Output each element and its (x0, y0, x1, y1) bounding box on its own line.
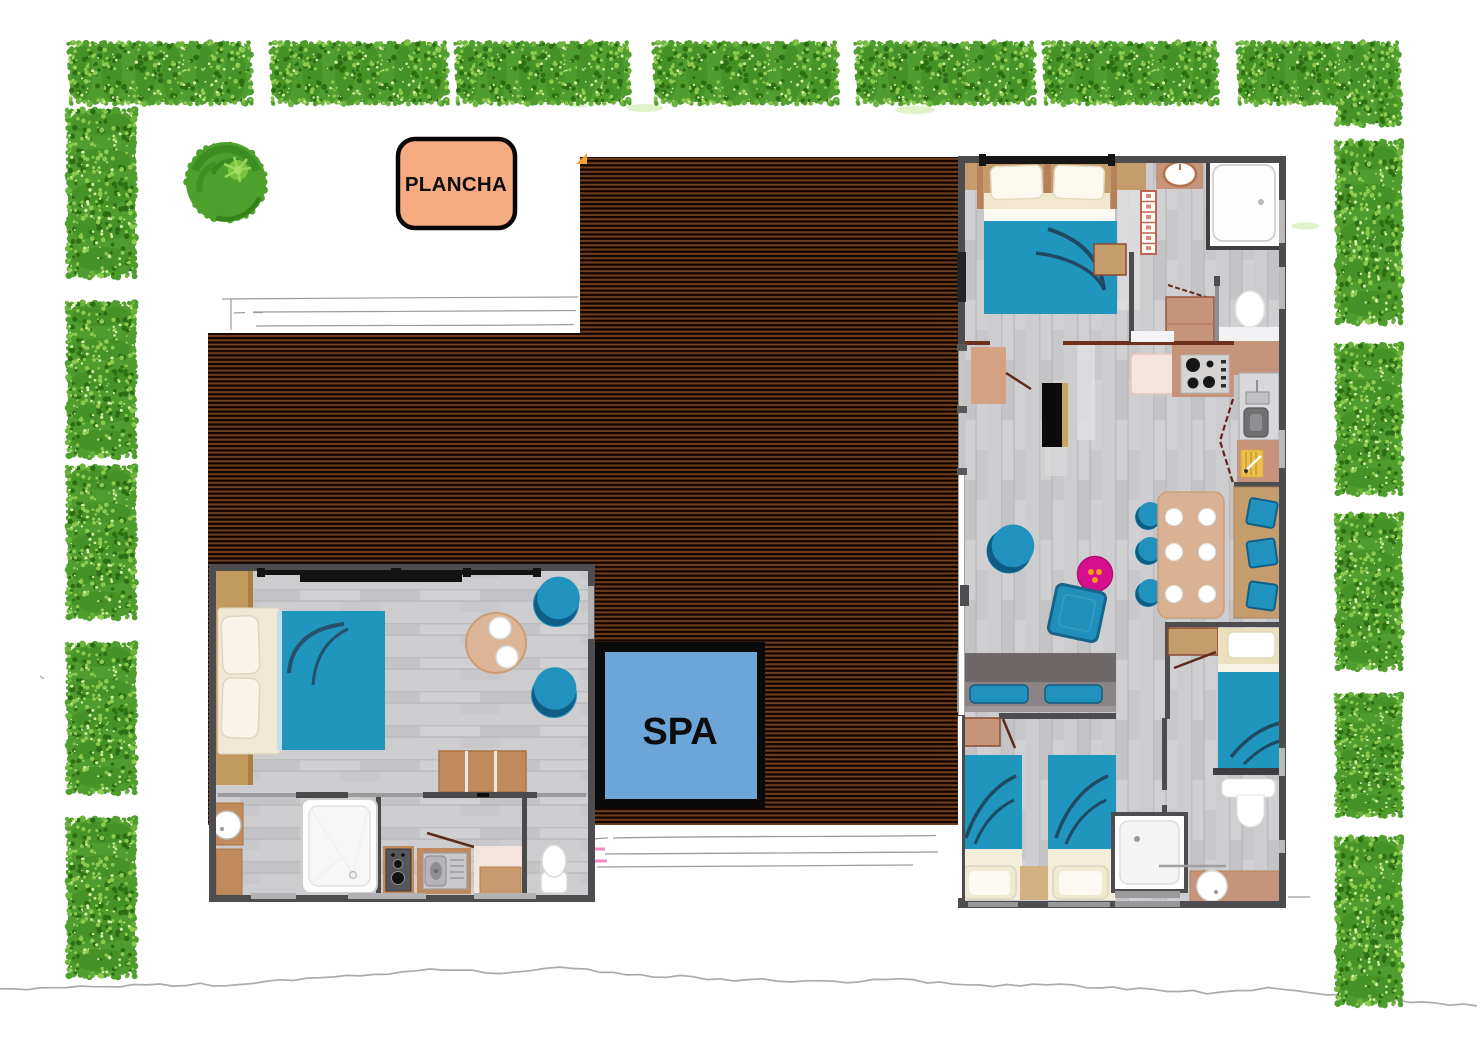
svg-text:PLANCHA: PLANCHA (405, 173, 507, 196)
svg-text:SPA: SPA (642, 711, 717, 753)
